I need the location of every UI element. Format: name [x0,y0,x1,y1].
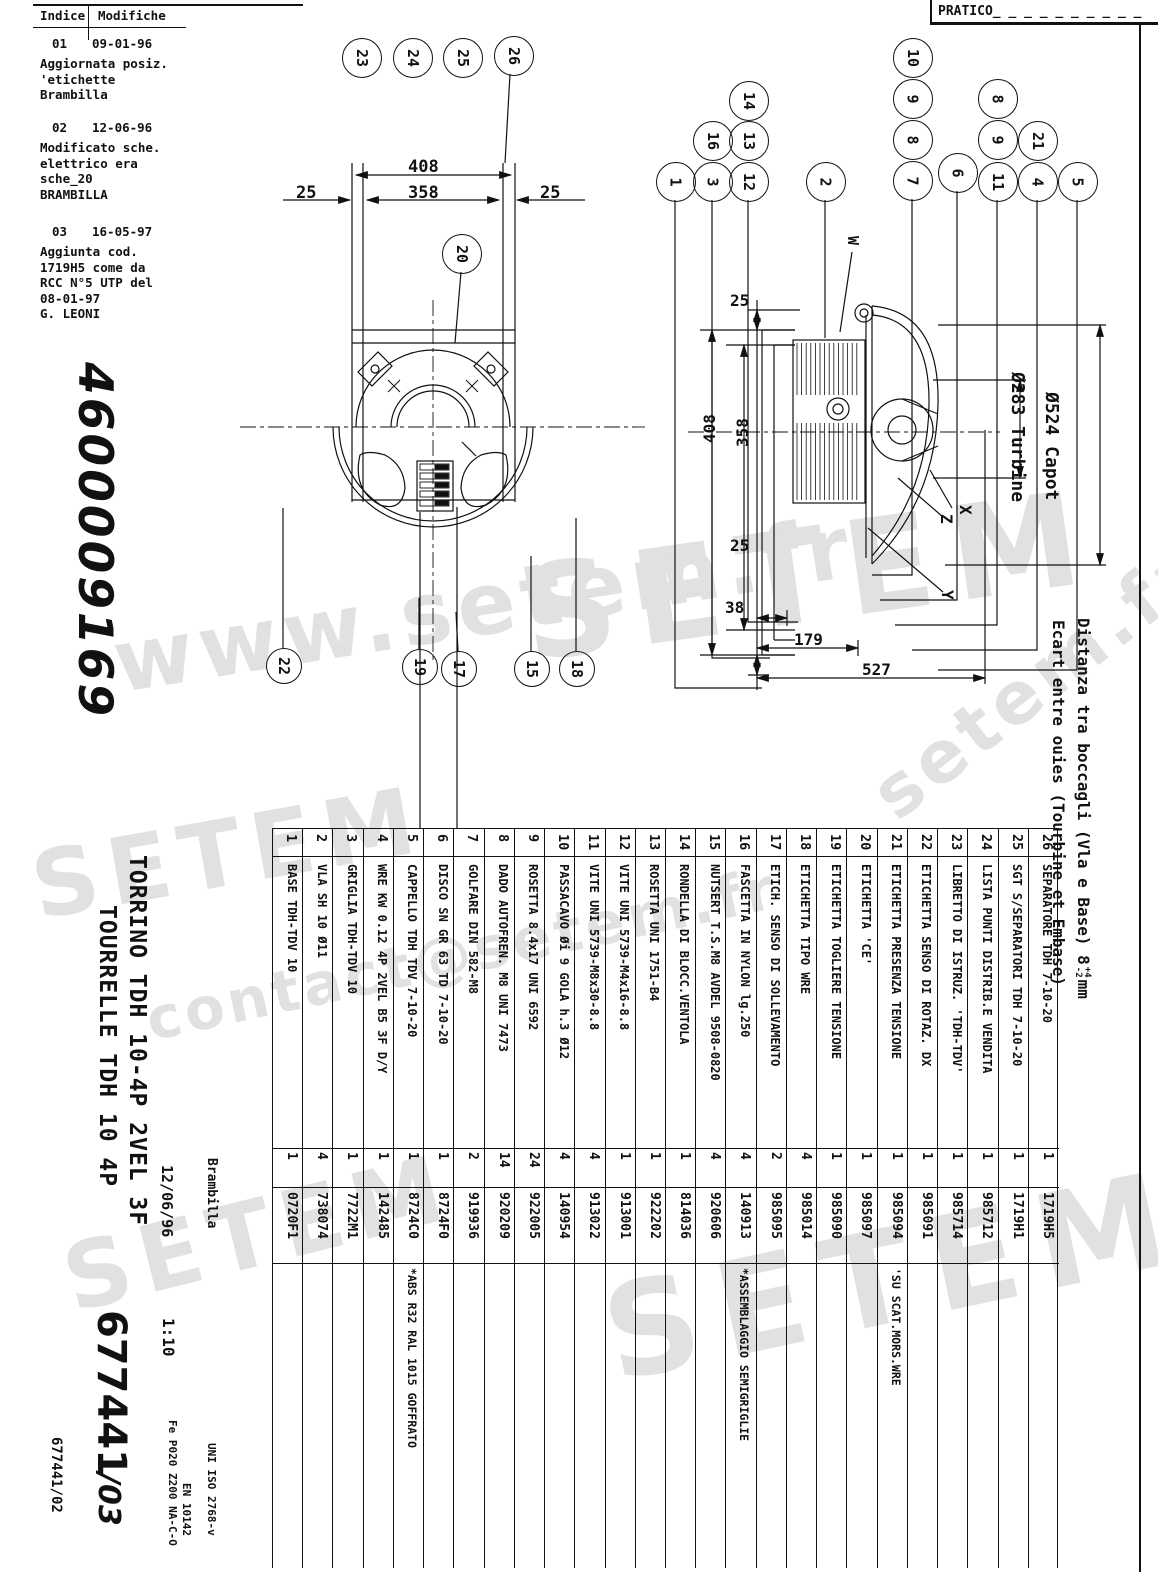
front-dim-left: 25 [296,183,316,203]
balloon-number: 24 [404,49,422,67]
part-description: ETICHETTA PRESENZA TENSIONE [889,864,903,1059]
parts-table-row-13: 13ROSETTA UNI 1751-B41922202 [635,828,665,1568]
parts-table-row-19: 19ETICHETTA TOGLIERE TENSIONE1985090 [816,828,846,1568]
title-italian: TORRINO TDH 10-4P 2VEL 3F [124,855,150,1226]
parts-table-row-21: 21ETICHETTA PRESENZA TENSIONE1985094'SU … [877,828,907,1568]
part-description: CAPPELLO TDH TDV 7-10-20 [405,864,419,1037]
parts-table-row-2: 2VLA SH 10 Ø114738074 [302,828,332,1568]
balloon-number: 7 [904,176,922,185]
part-quantity: 1 [677,1152,692,1160]
part-position: 14 [676,834,692,850]
balloon-26: 26 [494,36,534,76]
balloon-19: 19 [402,649,438,685]
side-dim-top25: 25 [730,291,749,310]
part-quantity: 24 [526,1152,541,1168]
parts-table-row-5: 5CAPPELLO TDH TDV 7-10-2018724C0*ABS R32… [393,828,423,1568]
pratico-box-left-border [930,0,932,24]
part-description: GRIGLIA TDH-TDV 10 [345,864,359,994]
front-dim-inner: 358 [408,183,439,203]
balloon-9: 9 [893,79,933,119]
part-code: 140913 [737,1192,752,1239]
part-quantity: 1 [858,1152,873,1160]
balloon-8: 8 [893,120,933,160]
balloon-number: 13 [740,132,758,150]
part-note: 'SU SCAT.MORS.WRE [889,1268,903,1386]
parts-table-row-3: 3GRIGLIA TDH-TDV 1017722M1 [332,828,362,1568]
part-code: 985091 [919,1192,934,1239]
front-dim-overall: 408 [408,157,439,177]
balloon-number: 20 [453,245,471,263]
part-position: 23 [948,834,964,850]
revision-note-line: Aggiornata posiz. [40,56,168,71]
balloon-number: 3 [704,177,722,186]
side-label-turbine: Ø283 Turbine [1007,372,1028,502]
part-position: 6 [434,834,450,842]
balloon-2: 2 [806,162,846,202]
balloon-number: 11 [989,173,1007,191]
tolerance-minus: -2 [1073,967,1082,978]
parts-table-row-6: 6DISCO SN GR 63 TD 7-10-2018724F0 [423,828,453,1568]
balloon-7: 7 [893,161,933,201]
part-position: 5 [404,834,420,842]
balloon-number: 25 [454,49,472,67]
part-position: 20 [857,834,873,850]
balloon-number: 5 [1069,177,1087,186]
part-quantity: 1 [284,1152,299,1160]
balloon-6: 6 [938,153,978,193]
balloon-14: 14 [729,81,769,121]
balloon-number: 6 [949,168,967,177]
tolerance-plus: +4 [1082,967,1091,978]
balloon-number: 17 [450,660,468,678]
part-description: NUTSERT T.S.M8 AVDEL 9508-0820 [708,864,722,1081]
part-description: LIBRETTO DI ISTRUZ. 'TDH-TDV' [950,864,964,1074]
part-description: WRE KW 0.12 4P 2VEL B5 3F D/Y [375,864,389,1074]
part-code: 922005 [526,1192,541,1239]
part-position: 2 [313,834,329,842]
drawing-sheet: SETEMwww.setem.frSETEMcontact@setem.frSE… [0,0,1158,1583]
part-code: 985095 [768,1192,783,1239]
part-description: LISTA PUNTI DISTRIB.E VENDITA [980,864,994,1074]
part-position: 24 [978,834,994,850]
part-description: ETICHETTA SENSO DI ROTAZ. DX [919,864,933,1066]
side-dim-179: 179 [794,630,823,649]
part-quantity: 1 [617,1152,632,1160]
balloon-number: 15 [523,660,541,678]
balloon-13: 13 [729,121,769,161]
part-position: 3 [343,834,359,842]
part-description: GOLFARE DIN 582-M8 [466,864,480,994]
side-label-z: Z [937,514,956,524]
part-position: 12 [616,834,632,850]
part-code: 1719H1 [1010,1192,1025,1239]
parts-table-row-10: 10PASSACAVO Øi 9 GOLA h.3 Ø124140954 [544,828,574,1568]
balloon-number: 8 [989,94,1007,103]
revision-index: 02 [52,120,67,135]
part-description: ETICH. SENSO DI SOLLEVAMENTO [768,864,782,1066]
side-note-unit: mm [1074,980,1093,999]
part-quantity: 4 [707,1152,722,1160]
side-dim-527: 527 [862,660,891,679]
part-code: 7722M1 [344,1192,359,1239]
balloon-number: 4 [1029,177,1047,186]
revision-note-line: Aggiunta cod. [40,244,138,259]
part-quantity: 1 [828,1152,843,1160]
part-quantity: 1 [344,1152,359,1160]
revision-note-line: BRAMBILLA [40,187,108,202]
part-quantity: 4 [737,1152,752,1160]
parts-table-rule [272,856,1059,857]
title-scale: 1:10 [159,1318,178,1357]
part-code: 920209 [496,1192,511,1239]
title-french: TOURRELLE TDH 10 4P [94,905,120,1187]
part-code: 814036 [677,1192,692,1239]
part-code: 919936 [465,1192,480,1239]
part-description: ETICHETTA TIPO WRE [798,864,812,994]
part-position: 11 [585,834,601,850]
standard-material: Fe P020 Z200 NA-C-O [166,1420,179,1546]
side-label-x: X [956,505,975,515]
part-description: RONDELLA DI BLOCC.VENTOLA [677,864,691,1045]
part-position: 19 [827,834,843,850]
balloon-17: 17 [441,651,477,687]
balloon-8: 8 [978,79,1018,119]
part-position: 4 [374,834,390,842]
balloon-9: 9 [978,120,1018,160]
parts-table-row-26: 26SEPARATORE TDH 7-10-2011719H5 [1028,828,1058,1568]
part-position: 18 [797,834,813,850]
part-description: FASCETTA IN NYLON lg.250 [738,864,752,1037]
revision-note-line: 'etichette [40,72,115,87]
parts-table-row-17: 17ETICH. SENSO DI SOLLEVAMENTO2985095 [756,828,786,1568]
revision-col-modifiche: Modifiche [98,8,166,23]
balloon-number: 21 [1029,132,1047,150]
part-quantity: 4 [314,1152,329,1160]
balloon-number: 14 [740,92,758,110]
parts-table-rule [272,1263,1059,1264]
part-description: VLA SH 10 Ø11 [315,864,329,958]
side-label-y: Y [938,590,957,600]
revision-col-indice: Indice [40,8,85,23]
revision-table-divider [88,4,89,40]
balloon-24: 24 [393,38,433,78]
parts-table-row-24: 24LISTA PUNTI DISTRIB.E VENDITA1985712 [967,828,997,1568]
parts-table-row-18: 18ETICHETTA TIPO WRE4985014 [786,828,816,1568]
balloon-21: 21 [1018,121,1058,161]
balloon-22: 22 [266,648,302,684]
part-note: *ASSEMBLAGGIO SEMIGRIGLIE [737,1268,751,1441]
standard-en: EN 10142 [180,1483,193,1536]
parts-table-row-14: 14RONDELLA DI BLOCC.VENTOLA1814036 [665,828,695,1568]
balloon-number: 12 [740,173,758,191]
parts-table-row-25: 25SGT S/SEPARATORI TDH 7-10-2011719H1 [998,828,1028,1568]
revision-note-line: 1719H5 come da [40,260,145,275]
side-dim-408: 408 [700,414,719,443]
balloon-12: 12 [729,162,769,202]
revision-index: 03 [52,224,67,239]
part-quantity: 1 [1040,1152,1055,1160]
revision-note-line: RCC N°5 UTP del [40,275,153,290]
parts-table-row-15: 15NUTSERT T.S.M8 AVDEL 9508-08204920606 [695,828,725,1568]
part-position: 1 [283,834,299,842]
side-note-it-text: Distanza tra boccagli (Vla e Base) 8 [1074,618,1093,965]
revision-date: 12-06-96 [92,120,152,135]
balloon-number: 8 [904,135,922,144]
balloon-18: 18 [559,651,595,687]
part-description: PASSACAVO Øi 9 GOLA h.3 Ø12 [557,864,571,1059]
balloon-4: 4 [1018,162,1058,202]
balloon-25: 25 [443,38,483,78]
part-code: 913001 [617,1192,632,1239]
sheet-right-border [1139,24,1141,1572]
order-ref: 677441 [88,1310,134,1477]
part-description: DISCO SN GR 63 TD 7-10-20 [436,864,450,1045]
part-code: 985712 [979,1192,994,1239]
drawing-number: 4600009169 [67,362,122,719]
part-code: 985097 [858,1192,873,1239]
part-code: 1719H5 [1040,1192,1055,1239]
part-position: 10 [555,834,571,850]
parts-table-rule [272,828,1059,829]
part-code: 142485 [375,1192,390,1239]
balloon-number: 1 [667,177,685,186]
parts-table-row-7: 7GOLFARE DIN 582-M82919936 [453,828,483,1568]
balloon-3: 3 [693,162,733,202]
side-dim-bottom25: 25 [730,536,749,555]
part-description: ETICHETTA 'CE' [859,864,873,965]
revision-date: 16-05-97 [92,224,152,239]
side-dim-38: 38 [725,598,744,617]
part-code: 985090 [828,1192,843,1239]
side-label-w: W [844,236,862,245]
footer-ref: 677441/02 [48,1437,64,1513]
balloon-11: 11 [978,162,1018,202]
part-position: 25 [1009,834,1025,850]
title-author: Brambilla [204,1158,219,1228]
pratico-box-bottom-border [930,22,1158,25]
revision-note-line: 08-01-97 [40,291,100,306]
part-description: ETICHETTA TOGLIERE TENSIONE [829,864,843,1059]
parts-table-row-23: 23LIBRETTO DI ISTRUZ. 'TDH-TDV'1985714 [937,828,967,1568]
revision-date: 09-01-96 [92,36,152,51]
part-quantity: 1 [375,1152,390,1160]
part-quantity: 1 [949,1152,964,1160]
side-note-italian: Distanza tra boccagli (Vla e Base) 8+4-2… [1073,618,1093,999]
revision-note-line: G. LEONI [40,306,100,321]
part-quantity: 2 [465,1152,480,1160]
parts-table-rule [272,1148,1059,1149]
balloon-10: 10 [893,38,933,78]
part-code: 140954 [556,1192,571,1239]
part-code: 985714 [949,1192,964,1239]
part-note: *ABS R32 RAL 1015 GOFFRATO [405,1268,419,1448]
balloon-20: 20 [442,234,482,274]
part-quantity: 1 [1010,1152,1025,1160]
parts-table-row-12: 12VITE UNI 5739-M4x16-8.81913001 [605,828,635,1568]
parts-table-row-1: 1BASE TDH-TDV 1010720F1 [272,828,302,1568]
front-dim-right: 25 [540,183,560,203]
part-code: 0720F1 [284,1192,299,1239]
balloon-number: 2 [817,177,835,186]
part-code: 913022 [586,1192,601,1239]
part-code: 738074 [314,1192,329,1239]
balloon-number: 23 [353,49,371,67]
revision-note-line: Brambilla [40,87,108,102]
part-position: 17 [767,834,783,850]
part-quantity: 1 [919,1152,934,1160]
balloon-5: 5 [1058,162,1098,202]
part-position: 15 [706,834,722,850]
balloon-number: 18 [568,660,586,678]
parts-table-row-8: 8DADO AUTOFREN. M8 UNI 747314920209 [484,828,514,1568]
part-position: 8 [495,834,511,842]
part-quantity: 1 [435,1152,450,1160]
balloon-number: 9 [989,135,1007,144]
part-quantity: 4 [798,1152,813,1160]
part-description: VITE UNI 5739-M8x30-8.8 [587,864,601,1030]
part-description: SEPARATORE TDH 7-10-20 [1040,864,1054,1023]
parts-table-row-20: 20ETICHETTA 'CE'1985097 [846,828,876,1568]
revision-note-line: Modificato sche. [40,140,160,155]
part-quantity: 4 [556,1152,571,1160]
title-date: 12/06/96 [158,1165,176,1237]
part-description: ROSETTA 8.4x17 UNI 6592 [526,864,540,1030]
part-code: 8724F0 [435,1192,450,1239]
balloon-number: 19 [411,658,429,676]
part-code: 922202 [647,1192,662,1239]
part-description: BASE TDH-TDV 10 [285,864,299,972]
balloon-number: 26 [505,47,523,65]
part-description: DADO AUTOFREN. M8 UNI 7473 [496,864,510,1052]
part-position: 7 [464,834,480,842]
part-position: 9 [525,834,541,842]
part-quantity: 1 [647,1152,662,1160]
part-quantity: 1 [979,1152,994,1160]
parts-table-row-9: 9ROSETTA 8.4x17 UNI 659224922005 [514,828,544,1568]
balloon-1: 1 [656,162,696,202]
standard-uni: UNI ISO 2768-v [205,1443,218,1536]
balloon-23: 23 [342,38,382,78]
part-quantity: 4 [586,1152,601,1160]
part-quantity: 1 [889,1152,904,1160]
part-description: VITE UNI 5739-M4x16-8.8 [617,864,631,1030]
revision-note-line: sche_20 [40,171,93,186]
side-dim-358: 358 [733,418,752,447]
part-position: 21 [888,834,904,850]
part-code: 920606 [707,1192,722,1239]
part-position: 22 [918,834,934,850]
side-label-capot: Ø524 Capot [1041,392,1062,500]
balloon-15: 15 [514,651,550,687]
balloon-number: 10 [904,49,922,67]
part-quantity: 2 [768,1152,783,1160]
parts-table-row-16: 16FASCETTA IN NYLON lg.2504140913*ASSEMB… [725,828,755,1568]
pratico-label: PRATICO_ _ _ _ _ _ _ _ _ _ [938,4,1142,19]
parts-table-rule [272,1187,1059,1188]
parts-table-row-11: 11VITE UNI 5739-M8x30-8.84913022 [574,828,604,1568]
parts-table-row-4: 4WRE KW 0.12 4P 2VEL B5 3F D/Y1142485 [363,828,393,1568]
part-position: 13 [646,834,662,850]
revision-note-line: elettrico era [40,156,138,171]
balloon-number: 9 [904,94,922,103]
part-code: 985094 [889,1192,904,1239]
part-position: 16 [736,834,752,850]
revision-index: 01 [52,36,67,51]
balloon-number: 16 [704,132,722,150]
parts-table-row-22: 22ETICHETTA SENSO DI ROTAZ. DX1985091 [907,828,937,1568]
part-code: 8724C0 [405,1192,420,1239]
balloon-16: 16 [693,121,733,161]
part-quantity: 14 [496,1152,511,1168]
part-quantity: 1 [405,1152,420,1160]
part-position: 26 [1039,834,1055,850]
balloon-number: 22 [275,657,293,675]
part-description: ROSETTA UNI 1751-B4 [647,864,661,1001]
revision-suffix: /03 [91,1473,126,1526]
part-code: 985014 [798,1192,813,1239]
part-description: SGT S/SEPARATORI TDH 7-10-20 [1010,864,1024,1066]
